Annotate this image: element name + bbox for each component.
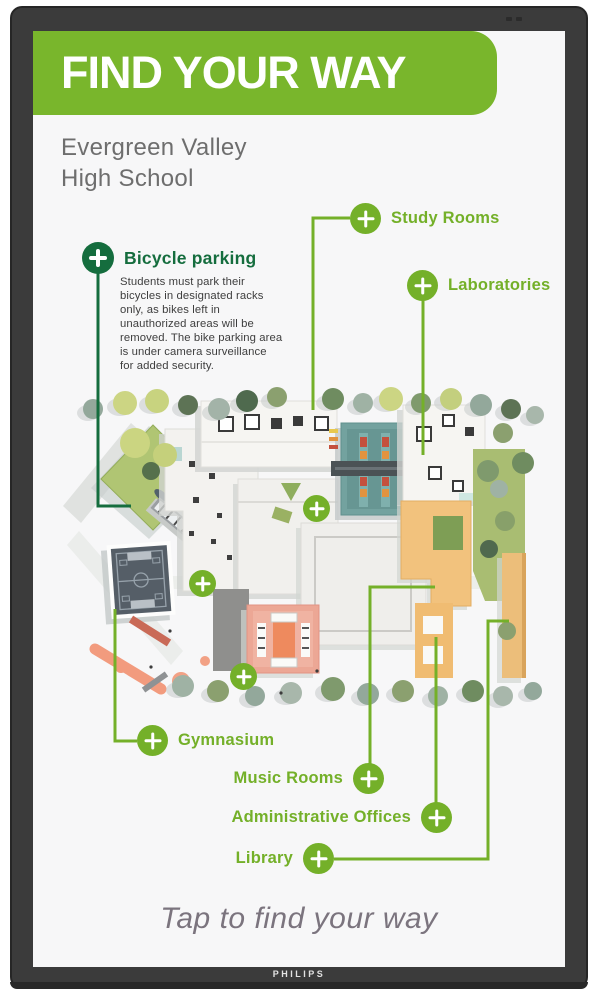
camera-indicator: [506, 17, 522, 21]
poi-label: Library: [236, 849, 293, 868]
poi-administrative-offices[interactable]: Administrative Offices: [231, 802, 452, 833]
tap-instruction: Tap to find your way: [33, 902, 565, 936]
plus-icon[interactable]: [421, 802, 452, 833]
bicycle-parking-description: Students must park their bicycles in des…: [120, 275, 306, 373]
poi-label: Bicycle parking: [124, 248, 256, 269]
plus-icon[interactable]: [350, 203, 381, 234]
poi-study-rooms[interactable]: Study Rooms: [350, 203, 500, 234]
poi-gymnasium[interactable]: Gymnasium: [137, 725, 274, 756]
poi-label: Music Rooms: [234, 769, 343, 788]
poi-music-rooms[interactable]: Music Rooms: [234, 763, 384, 794]
plus-icon[interactable]: [407, 270, 438, 301]
poi-laboratories[interactable]: Laboratories: [407, 270, 550, 301]
signage-screen[interactable]: FIND YOUR WAY Evergreen Valley High Scho…: [33, 31, 565, 967]
poi-label: Gymnasium: [178, 731, 274, 750]
poi-label: Study Rooms: [391, 209, 500, 228]
poi-label: Laboratories: [448, 276, 550, 295]
plus-icon[interactable]: [303, 843, 334, 874]
philips-logo: PHILIPS: [12, 967, 586, 981]
map-marker-plus-icon[interactable]: [189, 570, 216, 597]
map-marker-plus-icon[interactable]: [303, 495, 330, 522]
poi-label: Administrative Offices: [231, 808, 411, 827]
poi-bicycle-parking[interactable]: Bicycle parking: [82, 242, 256, 274]
map-marker-plus-icon[interactable]: [230, 663, 257, 690]
connector-study-rooms: [313, 218, 350, 410]
display-bezel: FIND YOUR WAY Evergreen Valley High Scho…: [10, 6, 588, 989]
plus-icon[interactable]: [137, 725, 168, 756]
plus-icon[interactable]: [353, 763, 384, 794]
plus-icon[interactable]: [82, 242, 114, 274]
poi-library[interactable]: Library: [236, 843, 334, 874]
